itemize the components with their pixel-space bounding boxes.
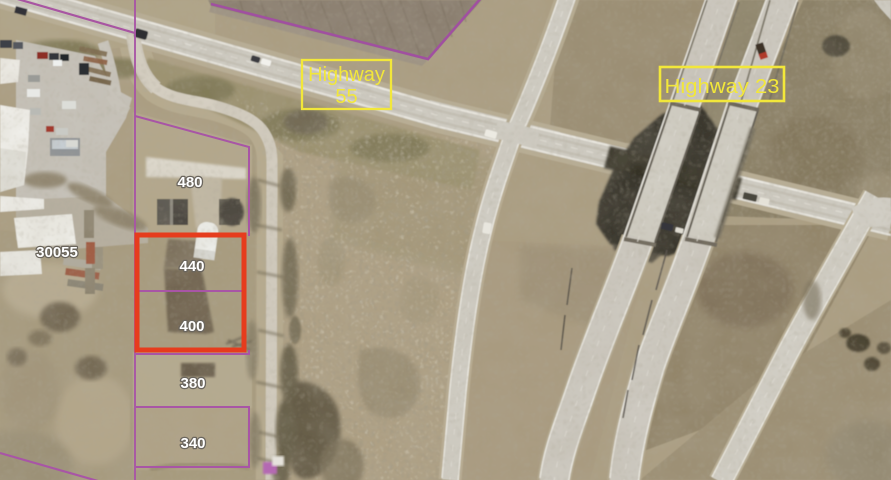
svg-text:400: 400	[179, 318, 204, 335]
svg-text:55: 55	[335, 86, 357, 108]
svg-text:440: 440	[179, 258, 204, 275]
svg-text:340: 340	[180, 435, 205, 452]
svg-text:Highway 23: Highway 23	[665, 76, 780, 98]
svg-text:380: 380	[180, 375, 205, 392]
svg-text:30055: 30055	[36, 244, 78, 261]
svg-text:Highway: Highway	[308, 64, 385, 86]
svg-text:480: 480	[177, 174, 202, 191]
